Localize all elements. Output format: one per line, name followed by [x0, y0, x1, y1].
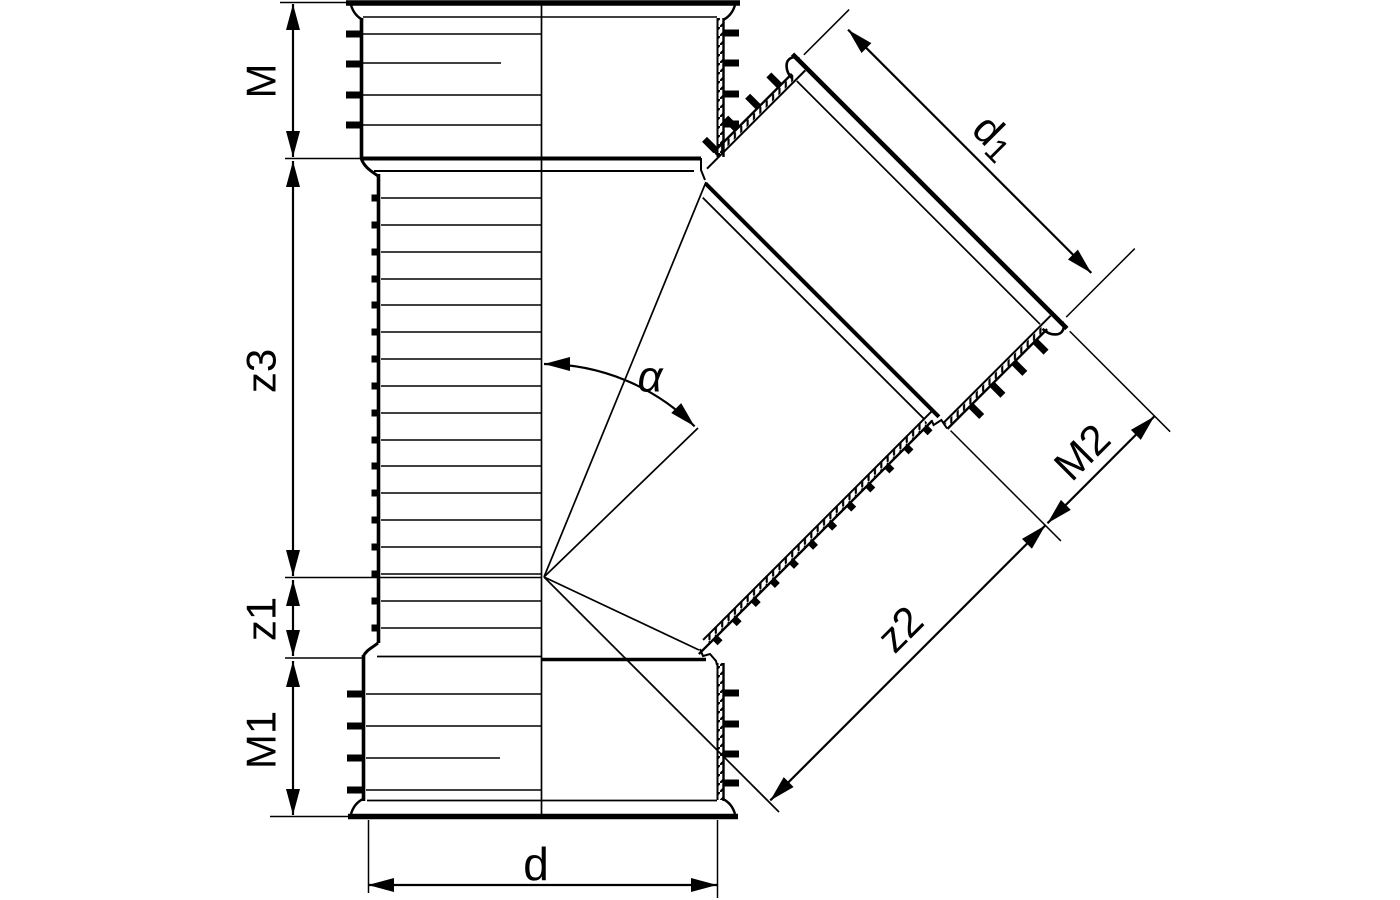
svg-text:M1: M1	[238, 711, 285, 769]
svg-text:z1: z1	[238, 597, 285, 641]
svg-text:z3: z3	[238, 349, 285, 393]
svg-text:M: M	[238, 64, 285, 99]
svg-text:α: α	[637, 353, 664, 402]
svg-text:d: d	[523, 838, 549, 890]
